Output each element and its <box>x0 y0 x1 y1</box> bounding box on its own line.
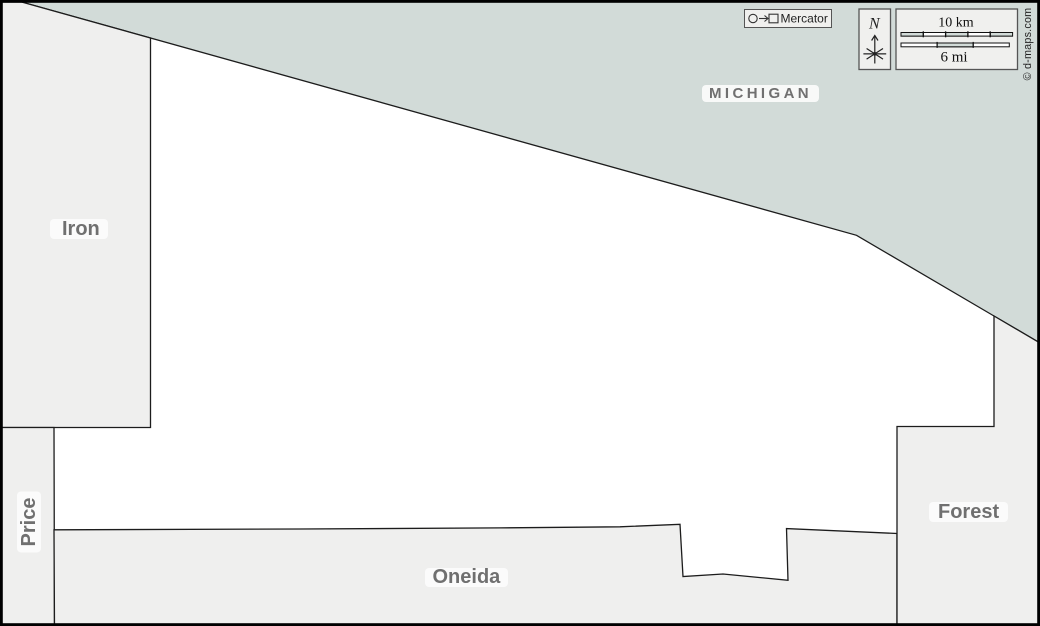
svg-text:Mercator: Mercator <box>781 12 828 26</box>
svg-text:6 mi: 6 mi <box>940 50 967 66</box>
svg-text:10 km: 10 km <box>938 16 974 31</box>
svg-text:N: N <box>868 16 881 33</box>
